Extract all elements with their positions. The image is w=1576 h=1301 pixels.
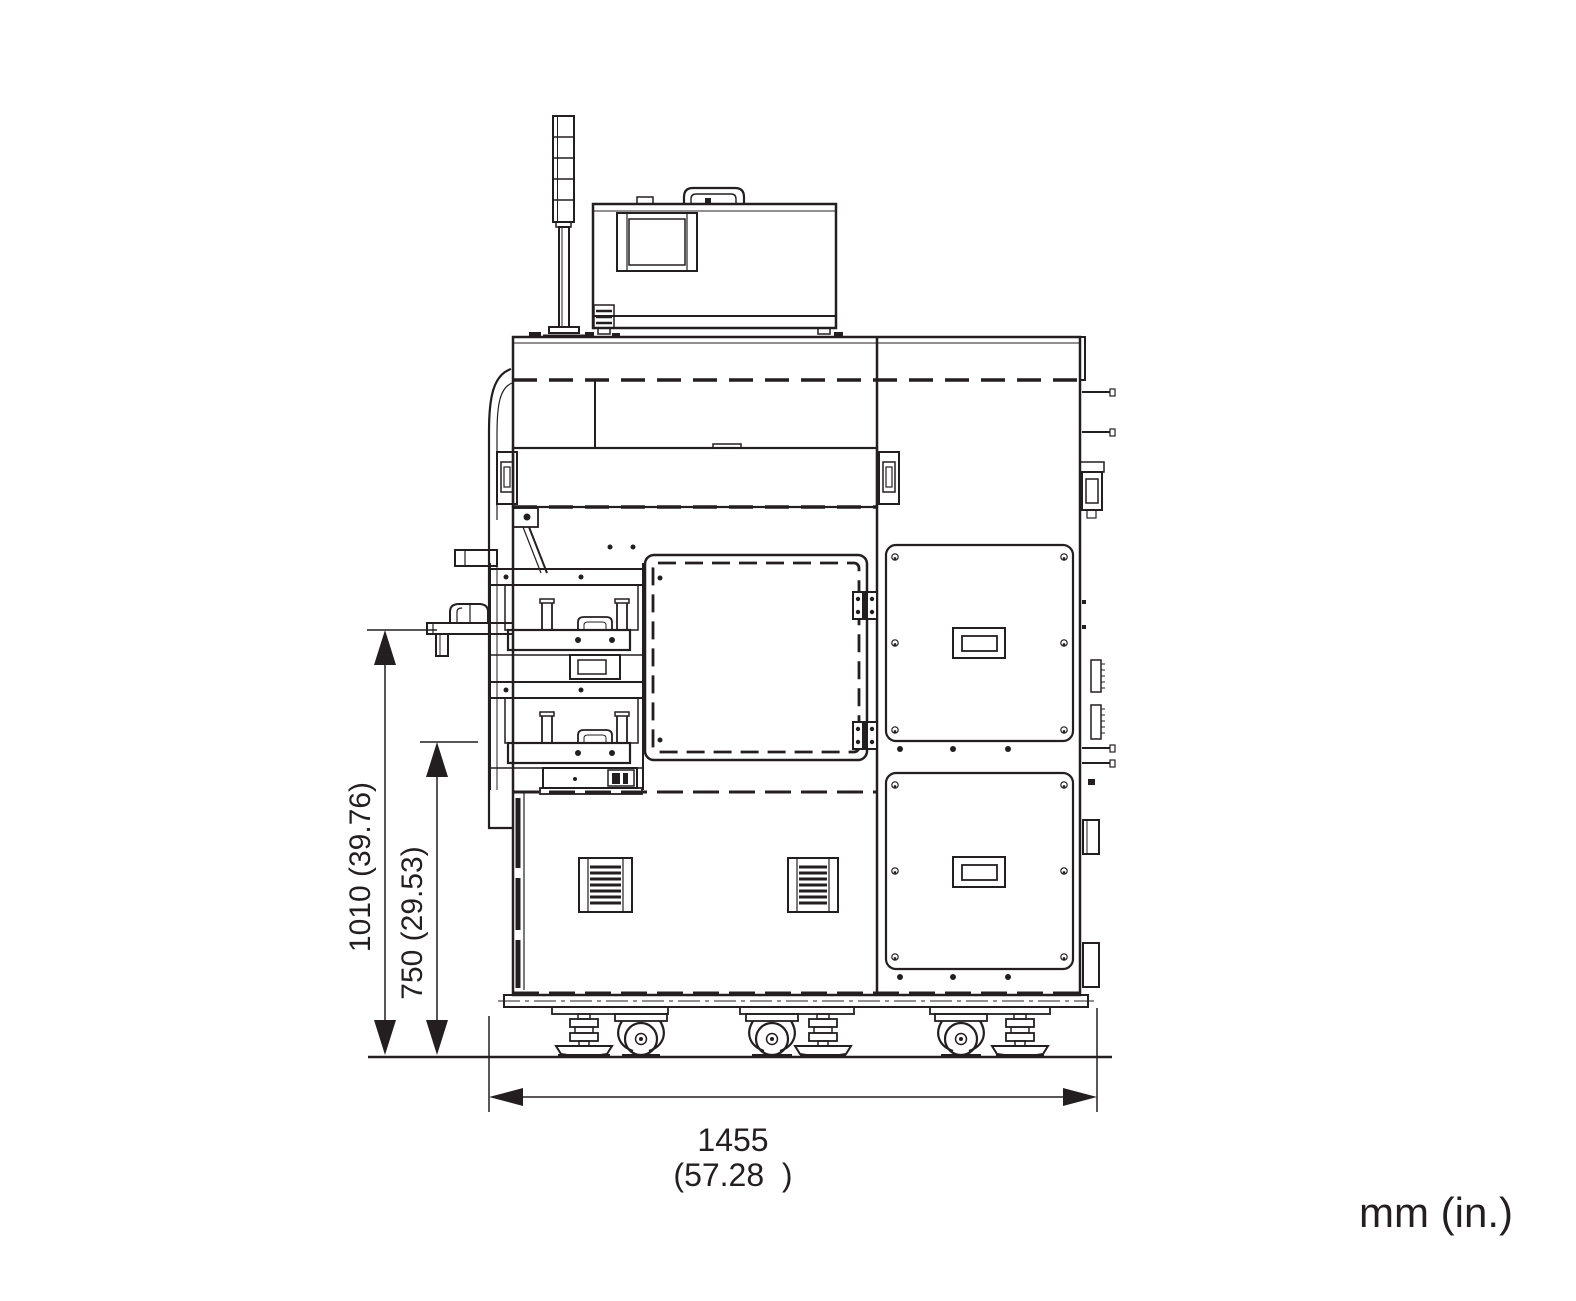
leveling-foot-right [992,1014,1048,1056]
right-latch [1080,462,1104,518]
right-side-fittings [1080,389,1115,987]
dimension-label-overall-height: 1010 (39.76) [344,782,377,952]
access-panel-lower [886,773,1073,980]
panel-handle-lower [953,857,1005,887]
dimension-label-work-height: 750 (29.53) [396,846,429,999]
front-door [645,555,877,760]
panel-handle-upper [953,628,1005,658]
caster-middle [746,1014,798,1055]
door-hinge-upper [853,592,877,619]
leveling-foot-left [556,1014,612,1056]
leveling-foot-middle [795,1014,851,1056]
technical-drawing-page: { "colors": { "line": "#231f20", "backgr… [0,0,1576,1301]
base-frame [498,995,1094,1014]
dimension-label-width-in: (57.28 ) [673,1157,792,1193]
dimension-label-width-mm: 1455 [697,1122,768,1158]
status-light-tower [543,116,588,336]
vent-louver-left [579,858,632,912]
dimension-height-table: 750 (29.53) [396,742,478,1055]
ground-line [368,1056,1112,1057]
caster-left [615,1014,667,1055]
left-guard-panel [455,369,547,828]
access-panel-upper [886,545,1073,752]
control-display-unit [593,188,836,334]
terminal-strip-upper [1091,660,1105,692]
terminal-strip-lower [1091,705,1105,739]
units-note: mm (in.) [1359,1189,1513,1236]
display-screen [617,213,697,271]
machine-front-elevation: 1010 (39.76) 750 (29.53) 1455 (57.28 ) m… [0,0,1576,1301]
vent-louver-right [788,858,838,912]
door-hinge-lower [853,722,877,749]
caster-right [935,1014,987,1055]
operator-table-arm [427,604,513,656]
center-latch [879,452,899,504]
